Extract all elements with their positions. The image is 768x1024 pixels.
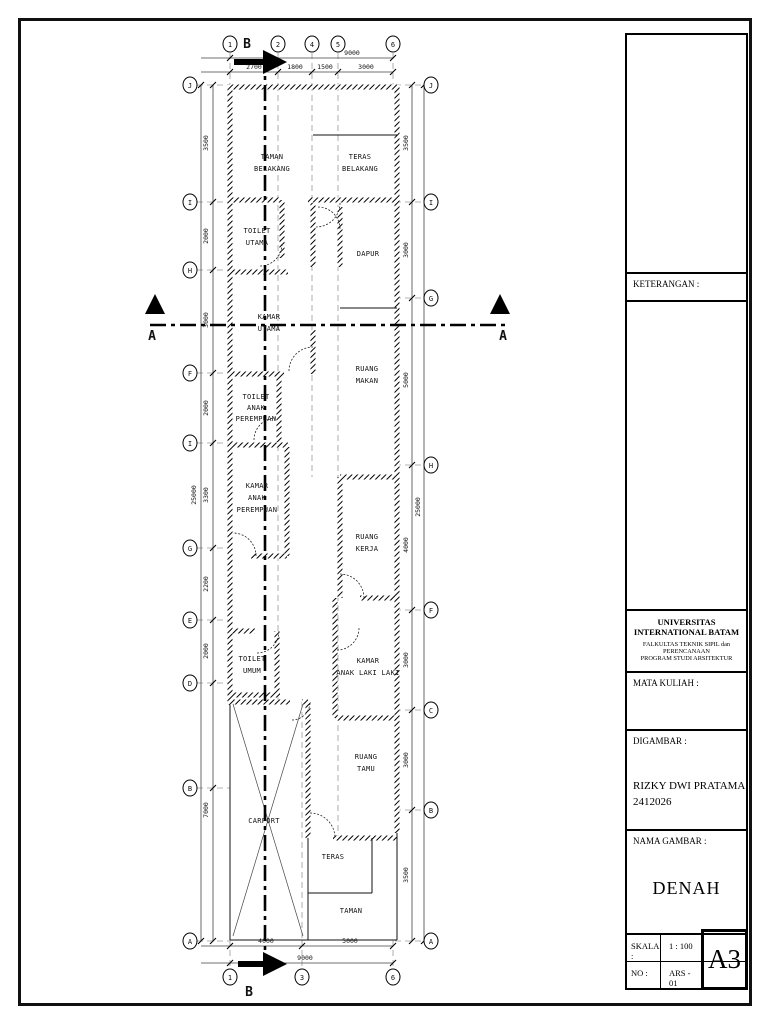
- digambar-label: DIGAMBAR :: [627, 731, 746, 746]
- room-labels: TAMAN BELAKANG TERAS BELAKANG TOILET UTA…: [236, 153, 400, 915]
- university-box: UNIVERSITAS INTERNATIONAL BATAM FALKULTA…: [627, 609, 746, 671]
- svg-text:I: I: [429, 199, 433, 207]
- svg-text:UTAMA: UTAMA: [246, 239, 269, 247]
- room-label-dapur: DAPUR: [357, 250, 380, 258]
- svg-text:PEREMPUAN: PEREMPUAN: [237, 506, 278, 514]
- svg-text:PEREMPUAN: PEREMPUAN: [236, 415, 277, 423]
- section-arrow-b-bottom: [263, 952, 287, 976]
- svg-text:2000: 2000: [202, 228, 210, 244]
- svg-text:I: I: [188, 199, 192, 207]
- grid-bubble-left-h: H: [183, 262, 197, 278]
- svg-text:1: 1: [228, 41, 232, 49]
- svg-text:ANAK: ANAK: [247, 404, 266, 412]
- grid-bubble-left-f: F: [183, 365, 197, 381]
- grid-bubble-top-6: 6: [386, 36, 400, 52]
- svg-text:2: 2: [276, 41, 280, 49]
- room-label-ruang-makan: RUANG: [356, 365, 379, 373]
- grid-bubble-left-i: I: [183, 194, 197, 210]
- section-label-b-top: B: [243, 37, 251, 52]
- title-block: KETERANGAN : UNIVERSITAS INTERNATIONAL B…: [625, 33, 748, 990]
- svg-text:3000: 3000: [202, 312, 210, 328]
- svg-text:9000: 9000: [344, 49, 360, 57]
- paper-size-box: A3: [701, 929, 748, 990]
- author-name: RIZKY DWI PRATAMA: [627, 780, 746, 792]
- room-label-teras-belakang: TERAS: [349, 153, 372, 161]
- svg-text:3500: 3500: [402, 867, 410, 883]
- svg-text:F: F: [429, 607, 433, 615]
- section-label-a-right: A: [499, 329, 507, 344]
- room-label-kamar-utama: KAMAR: [258, 313, 281, 321]
- grid-bubble-top-2: 2: [271, 36, 285, 52]
- grid-bubble-left-d: D: [183, 675, 197, 691]
- svg-text:3500: 3500: [402, 135, 410, 151]
- university-name: UNIVERSITAS INTERNATIONAL BATAM: [627, 617, 746, 637]
- faculty-line1: FALKULTAS TEKNIK SIPIL dan PERENCANAAN: [627, 641, 746, 655]
- svg-text:5000: 5000: [402, 372, 410, 388]
- svg-text:H: H: [188, 267, 192, 275]
- grid-bubble-left-e: E: [183, 612, 197, 628]
- section-arrow-a-right: [490, 294, 510, 314]
- grid-bubble-right-f: F: [424, 602, 438, 618]
- room-label-toilet-umum: TOILET: [238, 655, 266, 663]
- drawing-title: DENAH: [627, 878, 746, 899]
- svg-text:KERJA: KERJA: [356, 545, 379, 553]
- svg-text:D: D: [188, 680, 192, 688]
- nama-gambar-label: NAMA GAMBAR :: [627, 831, 746, 846]
- svg-text:E: E: [188, 617, 192, 625]
- svg-text:G: G: [429, 295, 433, 303]
- svg-text:3000: 3000: [402, 652, 410, 668]
- skala-value: 1 : 100: [661, 935, 697, 961]
- grid-bubble-right-h: H: [424, 457, 438, 473]
- svg-text:I: I: [188, 440, 192, 448]
- room-label-toilet-anak-perempuan: TOILET: [242, 393, 270, 401]
- svg-text:UTAMA: UTAMA: [258, 325, 281, 333]
- svg-text:J: J: [188, 82, 192, 90]
- svg-text:C: C: [429, 707, 433, 715]
- grid-bubble-right-c: C: [424, 702, 438, 718]
- svg-text:2200: 2200: [202, 576, 210, 592]
- svg-text:MAKAN: MAKAN: [356, 377, 379, 385]
- svg-text:2000: 2000: [202, 643, 210, 659]
- grid-bubble-bottom-3: 3: [295, 969, 309, 985]
- svg-text:3500: 3500: [202, 135, 210, 151]
- nama-gambar-box: NAMA GAMBAR : DENAH: [627, 829, 746, 933]
- paper-size: A3: [708, 944, 741, 975]
- skala-label: SKALA :: [627, 935, 661, 961]
- room-label-kamar-anak-laki-laki: KAMAR: [357, 657, 380, 665]
- mata-kuliah-box: MATA KULIAH :: [627, 671, 746, 729]
- svg-text:7000: 7000: [202, 802, 210, 818]
- grid-bubble-right-b: B: [424, 802, 438, 818]
- room-label-teras: TERAS: [322, 853, 345, 861]
- svg-text:2700: 2700: [246, 63, 262, 71]
- svg-text:25000: 25000: [414, 497, 422, 517]
- room-label-ruang-tamu: RUANG: [355, 753, 378, 761]
- grid-bubble-left-j: J: [183, 77, 197, 93]
- grid-bubble-bottom-6: 6: [386, 969, 400, 985]
- svg-text:3: 3: [300, 974, 304, 982]
- section-line-a: A A: [145, 294, 510, 344]
- grid-bubble-right-g: G: [424, 290, 438, 306]
- digambar-box: DIGAMBAR : RIZKY DWI PRATAMA 2412026: [627, 729, 746, 829]
- keterangan-row: KETERANGAN :: [627, 272, 746, 302]
- room-label-kamar-anak-perempuan: KAMAR: [246, 482, 269, 490]
- svg-text:5: 5: [336, 41, 340, 49]
- grid-bubble-left-a: A: [183, 933, 197, 949]
- grid-bubble-top-1: 1: [223, 36, 237, 52]
- svg-text:UMUM: UMUM: [243, 667, 261, 675]
- section-label-b-bottom: B: [245, 985, 253, 1000]
- svg-text:3000: 3000: [358, 63, 374, 71]
- svg-text:ANAK: ANAK: [248, 494, 267, 502]
- no-label: NO :: [627, 962, 661, 990]
- mata-kuliah-label: MATA KULIAH :: [627, 673, 746, 688]
- svg-text:4000: 4000: [402, 537, 410, 553]
- svg-text:1800: 1800: [287, 63, 303, 71]
- grid-bubble-left-i2: I: [183, 435, 197, 451]
- faculty-line2: PROGRAM STUDI ARSITEKTUR: [627, 655, 746, 662]
- room-label-ruang-kerja: RUANG: [356, 533, 379, 541]
- door-swings: [233, 203, 364, 838]
- svg-text:BELAKANG: BELAKANG: [342, 165, 378, 173]
- section-arrow-b-top: [263, 50, 287, 74]
- grid-bubble-left-b: B: [183, 780, 197, 796]
- grid-bubble-right-i: I: [424, 194, 438, 210]
- svg-text:1500: 1500: [317, 63, 333, 71]
- svg-text:H: H: [429, 462, 433, 470]
- svg-text:B: B: [429, 807, 433, 815]
- keterangan-label: KETERANGAN :: [627, 274, 746, 289]
- svg-text:F: F: [188, 370, 192, 378]
- section-label-a-left: A: [148, 329, 156, 344]
- svg-text:BELAKANG: BELAKANG: [254, 165, 290, 173]
- room-label-carport: CARPORT: [248, 817, 280, 825]
- svg-text:9000: 9000: [297, 954, 313, 962]
- svg-text:B: B: [188, 785, 192, 793]
- svg-text:5000: 5000: [342, 937, 358, 945]
- grid-bubble-right-a: A: [424, 933, 438, 949]
- svg-text:TAMU: TAMU: [357, 765, 375, 773]
- grid-bubble-top-4: 4: [305, 36, 319, 52]
- grid-bubble-top-5: 5: [331, 36, 345, 52]
- svg-text:3300: 3300: [202, 487, 210, 503]
- drawing-sheet: A A B B 1 2 4 5 6 1 3 6 J I H F I G E D …: [0, 0, 768, 1024]
- room-label-taman-belakang: TAMAN: [261, 153, 284, 161]
- svg-text:4000: 4000: [258, 937, 274, 945]
- floor-plan: A A B B 1 2 4 5 6 1 3 6 J I H F I G E D …: [0, 0, 620, 1024]
- svg-text:6: 6: [391, 41, 395, 49]
- svg-text:3000: 3000: [402, 752, 410, 768]
- svg-text:3000: 3000: [402, 242, 410, 258]
- no-value: ARS - 01: [661, 962, 697, 990]
- room-label-taman: TAMAN: [340, 907, 363, 915]
- svg-text:2000: 2000: [202, 400, 210, 416]
- author-id: 2412026: [627, 796, 746, 808]
- svg-text:G: G: [188, 545, 192, 553]
- svg-text:ANAK LAKI LAKI: ANAK LAKI LAKI: [336, 669, 399, 677]
- grid-bubble-bottom-1: 1: [223, 969, 237, 985]
- svg-text:25000: 25000: [190, 485, 198, 505]
- section-arrow-a-left: [145, 294, 165, 314]
- dimensions-left: 3500 2000 3000 2000 3300 2200 2000 7000 …: [190, 135, 210, 818]
- svg-text:1: 1: [228, 974, 232, 982]
- grid-bubble-right-j: J: [424, 77, 438, 93]
- grid-bubble-left-g: G: [183, 540, 197, 556]
- svg-text:6: 6: [391, 974, 395, 982]
- room-label-toilet-utama: TOILET: [243, 227, 271, 235]
- svg-text:4: 4: [310, 41, 314, 49]
- svg-text:J: J: [429, 82, 433, 90]
